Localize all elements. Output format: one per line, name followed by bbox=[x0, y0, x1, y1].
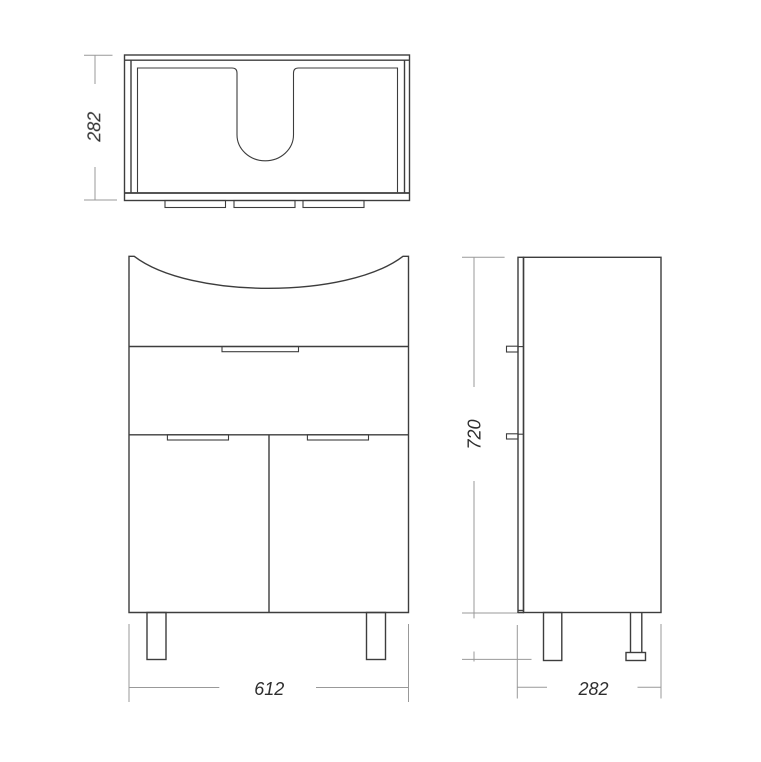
svg-text:282: 282 bbox=[84, 112, 104, 143]
svg-text:282: 282 bbox=[577, 679, 608, 699]
svg-text:612: 612 bbox=[254, 679, 284, 699]
svg-text:720: 720 bbox=[465, 419, 485, 449]
